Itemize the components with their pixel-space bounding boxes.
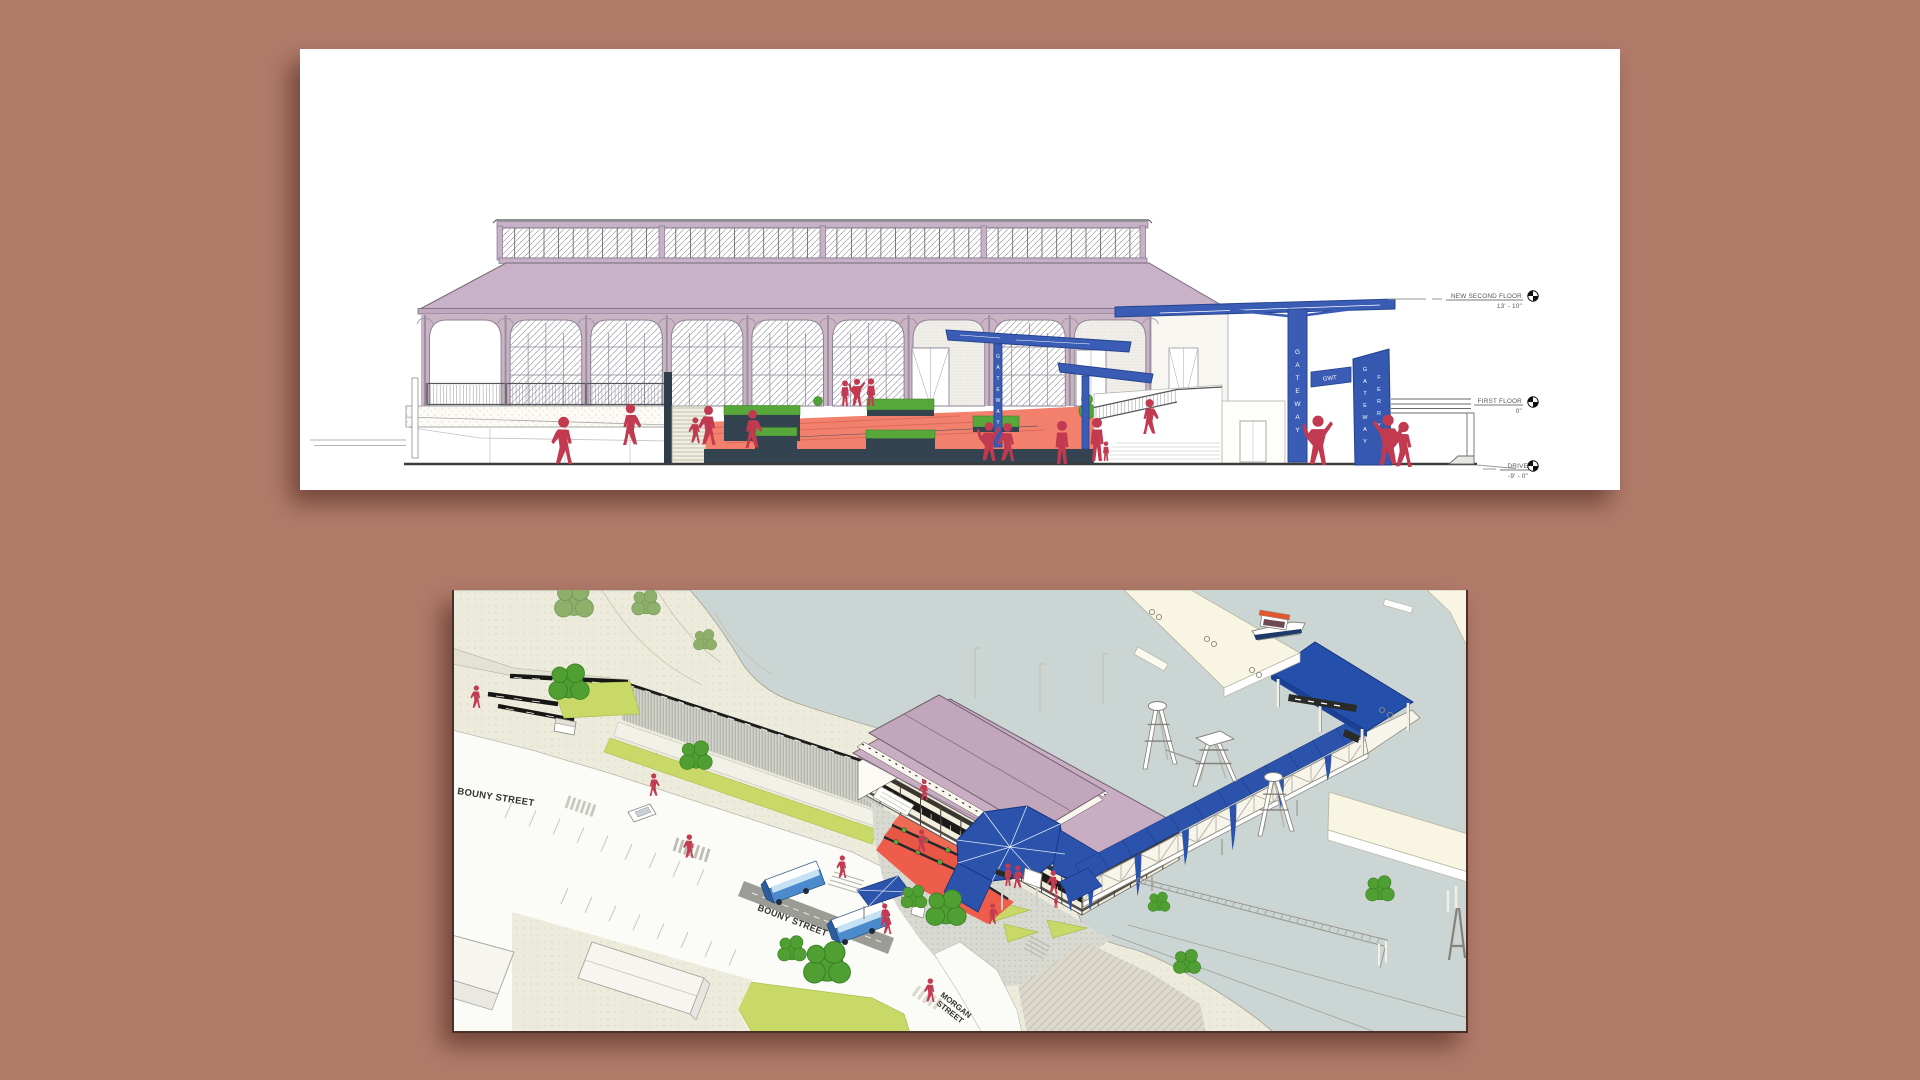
svg-text:NEW SECOND FLOOR: NEW SECOND FLOOR [1451, 293, 1522, 300]
svg-text:FIRST FLOOR: FIRST FLOOR [1478, 398, 1523, 405]
svg-text:G: G [1363, 367, 1367, 373]
svg-text:Y: Y [1295, 427, 1300, 434]
svg-text:DRIVE: DRIVE [1507, 463, 1528, 470]
svg-text:T: T [996, 376, 999, 382]
svg-text:G: G [996, 354, 1000, 360]
svg-text:R: R [1377, 411, 1381, 417]
svg-text:A: A [1295, 414, 1300, 421]
svg-text:A: A [1295, 362, 1300, 369]
svg-text:Y: Y [1363, 439, 1367, 445]
svg-text:G: G [1295, 349, 1300, 356]
svg-text:E: E [1295, 388, 1300, 395]
svg-text:E: E [1377, 387, 1381, 393]
svg-text:W: W [1294, 401, 1301, 408]
svg-text:R: R [1377, 399, 1381, 405]
svg-text:T: T [1296, 375, 1300, 382]
svg-text:W: W [996, 398, 1001, 404]
svg-text:A: A [1363, 379, 1367, 385]
svg-text:A: A [1363, 427, 1367, 433]
svg-text:0": 0" [1516, 408, 1522, 415]
svg-text:-9' - 0": -9' - 0" [1508, 473, 1528, 480]
svg-text:E: E [1363, 403, 1367, 409]
svg-text:13' - 10": 13' - 10" [1497, 303, 1522, 310]
svg-text:W: W [1362, 415, 1368, 421]
